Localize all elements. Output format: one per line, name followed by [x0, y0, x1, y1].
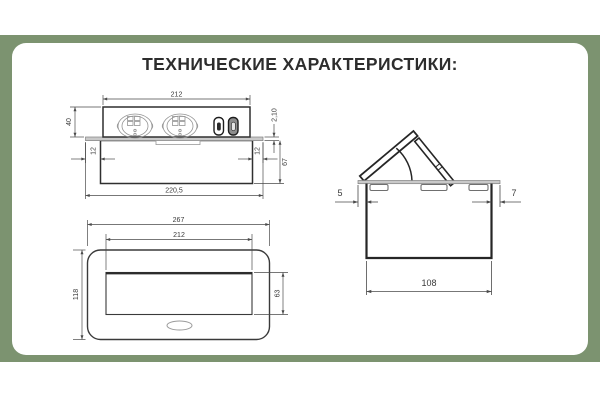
dim-lid-thickness: 2,10: [272, 108, 279, 122]
dim-cutout-width: 212: [173, 232, 185, 239]
side-view-drawing: 212 40 2,10 12 12 67 220,5: [60, 85, 300, 205]
dim-right-overhang: 7: [511, 188, 516, 198]
dim-top-width: 212: [171, 92, 183, 99]
usb-c-port-icon: [229, 118, 239, 136]
dim-right-inset: 12: [255, 147, 262, 155]
lid-support-arm: [415, 138, 455, 186]
dim-outer-width: 267: [173, 217, 185, 224]
dim-flange-width: 220,5: [165, 188, 183, 195]
usb-port-icon: [214, 118, 224, 136]
mounting-clips: [370, 185, 488, 191]
dim-outer-height: 118: [73, 289, 80, 300]
dim-left-overhang: 5: [337, 188, 342, 198]
page-title: ТЕХНИЧЕСКИЕ ХАРАКТЕРИСТИКИ:: [0, 54, 600, 75]
dim-left-inset: 12: [91, 147, 98, 155]
end-view-drawing: 5 7 108: [320, 125, 530, 295]
dim-box-width: 108: [421, 278, 436, 288]
dim-cutout-height: 63: [275, 290, 282, 298]
push-latch-oval: [167, 321, 192, 330]
lid-cutout-outline: [106, 273, 252, 315]
opening-angle-arc: [396, 148, 412, 181]
top-view-drawing: 267 212 118 63: [60, 212, 310, 352]
mounting-box-outline: [367, 184, 492, 259]
dim-front-height: 40: [66, 118, 73, 126]
open-lid: [360, 131, 418, 181]
mounting-box-outline: [101, 141, 253, 184]
dim-box-depth: 67: [282, 158, 289, 166]
latch-clip: [156, 141, 200, 145]
flange-plate: [358, 181, 500, 184]
